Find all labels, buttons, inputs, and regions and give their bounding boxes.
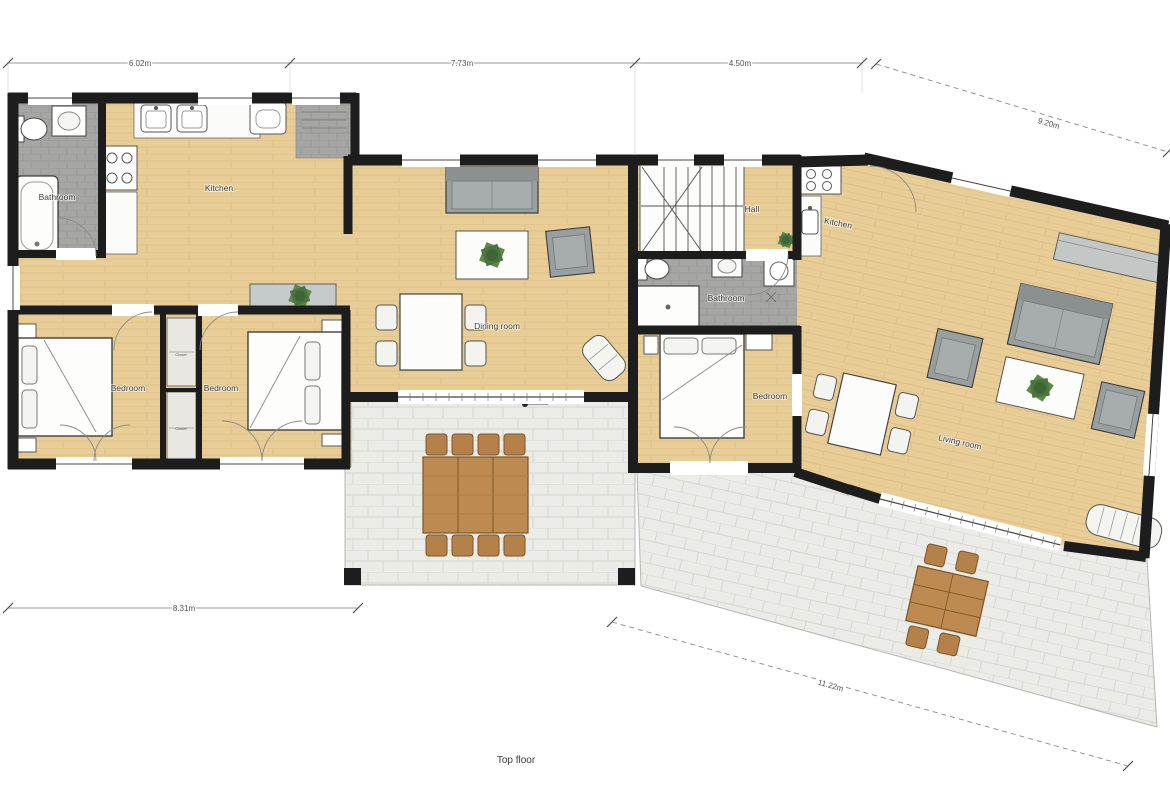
closet-2-label: Closet [175, 426, 187, 431]
entry-porch [296, 100, 352, 158]
armchair-icon [546, 227, 595, 277]
nightstand [322, 434, 342, 446]
terrace-post [344, 568, 361, 585]
toilet-icon [637, 258, 669, 280]
dimension-line-right-diagonal [876, 64, 1168, 152]
nightstand [644, 336, 658, 354]
bathroom-2-label: Bathroom [708, 293, 745, 303]
dim-bottom-diagonal: 11.22m [817, 678, 845, 694]
bathroom-1-label: Bathroom [39, 192, 76, 202]
shower-icon [637, 286, 699, 328]
sink-icon [141, 105, 171, 132]
washbasin-icon [250, 102, 286, 134]
stove-icon [801, 166, 841, 194]
kitchen-1-label: Kitchen [205, 183, 234, 193]
floor-title: Top floor [497, 755, 536, 766]
bedroom-2-label: Bedroom [204, 383, 239, 393]
nightstand [322, 320, 342, 332]
bed-icon [16, 324, 112, 452]
sink-icon [52, 106, 86, 136]
bedroom-3-label: Bedroom [753, 391, 788, 401]
nightstand [746, 334, 772, 350]
nightstand [16, 324, 36, 338]
closet-1-label: Closet [175, 352, 187, 357]
bedroom-2-furniture [248, 320, 342, 446]
dim-top-mid: 7.73m [451, 59, 474, 68]
bed-icon [248, 320, 342, 446]
nightstand [16, 438, 36, 452]
stove-icon [103, 146, 137, 190]
terrace-left [344, 400, 635, 585]
bedroom-1-label: Bedroom [111, 383, 146, 393]
bathtub-icon [16, 176, 58, 256]
dim-top-left: 6.02m [129, 59, 152, 68]
dim-top-right: 4.50m [729, 59, 752, 68]
dining-room-label: Dining room [474, 321, 520, 331]
terrace-post [618, 568, 635, 585]
hall-label: Hall [745, 204, 760, 214]
dim-bottom-left: 8.31m [173, 604, 196, 613]
sink-icon [802, 206, 818, 234]
bedroom-1-furniture [16, 324, 112, 452]
coffee-table-icon [456, 231, 528, 279]
stairs-icon [640, 165, 744, 254]
floor-plan: Bathroom Kitchen Bedroom Bedroom Closet … [0, 0, 1170, 785]
kitchen-counter [103, 192, 137, 254]
sink-icon [177, 105, 207, 132]
sofa-icon [446, 167, 538, 213]
